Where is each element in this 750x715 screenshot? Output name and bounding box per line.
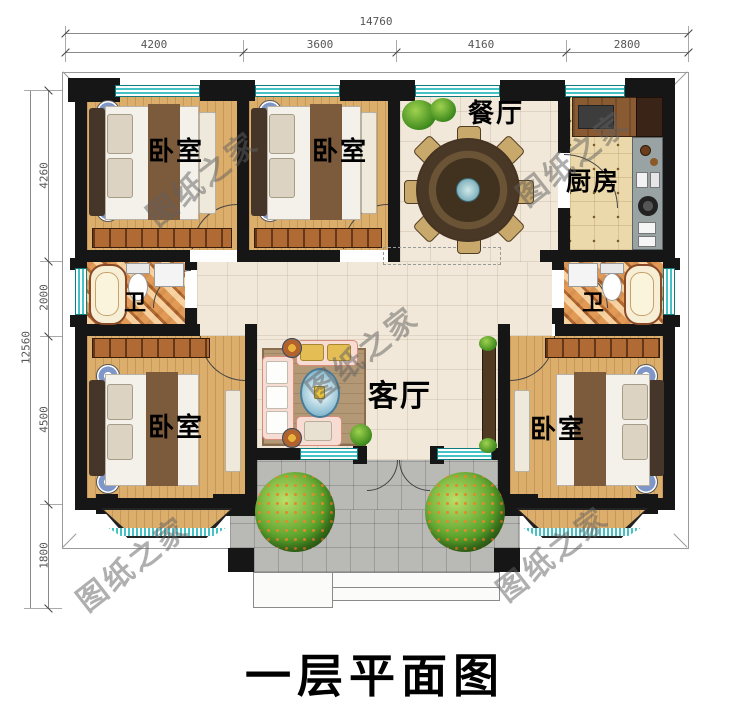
dim-ext xyxy=(24,608,62,609)
pillow xyxy=(622,424,648,460)
porch-column-front-left xyxy=(228,548,254,572)
window-bath-right xyxy=(663,268,675,315)
wall-bath-left-b xyxy=(185,308,197,324)
wall-ab-1 xyxy=(87,250,190,262)
bush xyxy=(425,472,505,552)
wall-ab-2 xyxy=(237,250,340,262)
dim-ext xyxy=(40,261,62,262)
pillow xyxy=(269,158,295,198)
window-bedroom-top-left xyxy=(115,85,200,97)
kitchen-module xyxy=(650,172,660,188)
drawing-title: 一层平面图 xyxy=(0,640,750,706)
bedroom-bench xyxy=(225,390,241,472)
pillow xyxy=(107,384,133,420)
bathtub-inner xyxy=(630,272,654,316)
dresser xyxy=(254,228,382,248)
label-bedroom-top-middle: 卧室 xyxy=(312,138,368,164)
dim-top-seg-line xyxy=(65,52,688,53)
label-bedroom-bottom-left: 卧室 xyxy=(148,414,204,440)
label-bath-right: 卫 xyxy=(582,292,606,314)
wall-bed3-living xyxy=(245,336,257,510)
bed-headboard xyxy=(89,380,105,476)
pillow xyxy=(269,114,295,154)
dim-ext xyxy=(40,336,62,337)
window-bedroom-top-middle xyxy=(255,85,340,97)
dim-left-total-line xyxy=(30,90,31,608)
bathtub-inner xyxy=(95,272,119,316)
dim-ext xyxy=(24,90,62,91)
dresser xyxy=(92,338,210,358)
floor-plan-canvas: 14760 4200 3600 4160 2800 12560 4260 200… xyxy=(0,0,750,715)
wall-kitchen-bottom xyxy=(540,250,675,262)
pillow xyxy=(107,158,133,198)
window-bath-left xyxy=(75,268,87,315)
kitchen-pot xyxy=(640,145,651,156)
bed-headboard xyxy=(89,108,105,216)
bath-sink xyxy=(568,263,598,287)
sofa-cushion xyxy=(266,361,288,384)
round-mat xyxy=(282,338,302,358)
plant xyxy=(479,336,497,351)
pillow xyxy=(622,384,648,420)
wall-living-bed4 xyxy=(498,336,510,510)
wall-bath-left-a xyxy=(185,262,197,270)
dresser xyxy=(545,338,660,358)
label-living: 客厅 xyxy=(368,382,432,412)
window-dining xyxy=(415,85,500,97)
wall-bc-right xyxy=(555,324,663,336)
fridge xyxy=(636,97,663,137)
pillow xyxy=(107,424,133,460)
label-dining: 餐厅 xyxy=(468,100,524,126)
dim-top-seg-2: 3600 xyxy=(280,39,360,50)
kitchen-appliance xyxy=(638,222,656,234)
window-living-left xyxy=(300,448,358,460)
porch-side-block xyxy=(253,572,333,608)
sofa-cushion xyxy=(266,386,288,409)
wall-bed2-dining xyxy=(388,97,400,250)
dim-top-seg-1: 4200 xyxy=(114,39,194,50)
dim-top-total-line xyxy=(65,33,688,34)
bedroom-bench xyxy=(514,390,530,472)
kitchen-module xyxy=(636,172,648,188)
wall-bc-left xyxy=(87,324,200,336)
wall-pier xyxy=(68,78,120,102)
armchair-cushion xyxy=(304,421,332,441)
bed-headboard xyxy=(648,380,664,476)
bath-sink xyxy=(154,263,184,287)
wall-bath-right-a xyxy=(552,262,564,270)
dim-ext xyxy=(40,504,62,505)
dim-left-seg-line xyxy=(48,90,49,608)
label-bedroom-bottom-right: 卧室 xyxy=(530,416,586,442)
dim-top-seg-4: 2800 xyxy=(587,39,667,50)
plant xyxy=(479,438,497,453)
dining-table-centerpiece xyxy=(456,178,480,202)
wall-pier xyxy=(70,315,87,327)
label-bath-left: 卫 xyxy=(124,292,148,314)
plant xyxy=(430,98,456,122)
tv-console xyxy=(482,342,496,446)
round-mat xyxy=(282,428,302,448)
pillow xyxy=(107,114,133,154)
wall-pier xyxy=(663,315,680,327)
wall-pier xyxy=(340,80,415,101)
wall-bc-column-right xyxy=(498,324,510,336)
ceiling-beam-dashed xyxy=(383,247,501,265)
plant xyxy=(350,424,372,446)
wall-bath-right-b xyxy=(552,308,564,324)
bush xyxy=(255,472,335,552)
kitchen-sink xyxy=(638,196,658,216)
dim-top-seg-3: 4160 xyxy=(441,39,521,50)
window-kitchen xyxy=(565,85,625,97)
dim-top-total: 14760 xyxy=(336,16,416,27)
wall-bc-column-left xyxy=(245,324,257,336)
kitchen-pot xyxy=(650,158,658,166)
kitchen-appliance xyxy=(638,236,656,247)
